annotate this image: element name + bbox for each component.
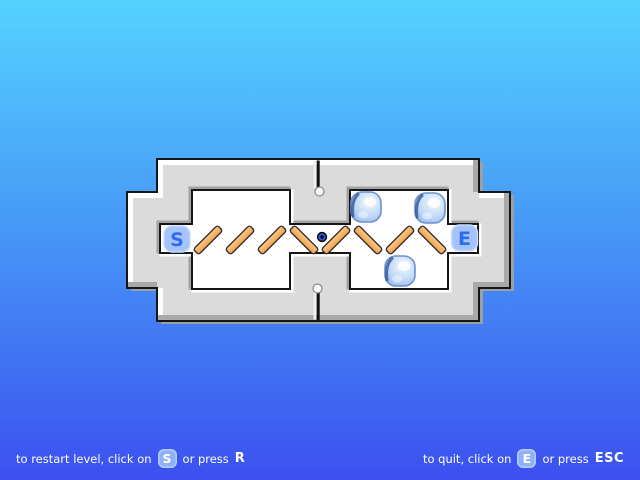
ice-cube-highlight xyxy=(398,261,411,271)
restart-hint: to restart level, click on S or press R xyxy=(16,449,245,468)
restart-hint-text: to restart level, click on xyxy=(16,452,152,466)
start-marker[interactable]: S xyxy=(164,226,190,252)
start-marker-label: S xyxy=(170,229,184,251)
game-screen: S E to restart level, click on S or pres… xyxy=(0,0,640,480)
level-board: S E xyxy=(0,0,640,480)
end-marker[interactable]: E xyxy=(452,225,478,251)
quit-hint-text: to quit, click on xyxy=(423,452,511,466)
quit-hint: to quit, click on E or press ESC xyxy=(423,449,624,468)
restart-hint-text2: or press xyxy=(183,452,229,466)
end-marker-label: E xyxy=(458,228,471,250)
ball-center xyxy=(320,235,323,238)
quit-e-badge[interactable]: E xyxy=(517,449,536,468)
ice-cube-highlight2 xyxy=(358,212,368,219)
ice-cube-highlight2 xyxy=(392,276,402,283)
ice-cube xyxy=(351,192,381,222)
ice-cube xyxy=(385,256,415,286)
quit-key-label: ESC xyxy=(595,451,624,466)
ice-cube-highlight2 xyxy=(422,213,432,220)
quit-hint-text2: or press xyxy=(542,452,588,466)
ice-cube xyxy=(415,193,445,223)
ice-cube-highlight xyxy=(428,198,441,208)
restart-key-label: R xyxy=(235,451,246,466)
restart-s-badge[interactable]: S xyxy=(158,449,177,468)
ice-cube-highlight xyxy=(364,197,377,207)
